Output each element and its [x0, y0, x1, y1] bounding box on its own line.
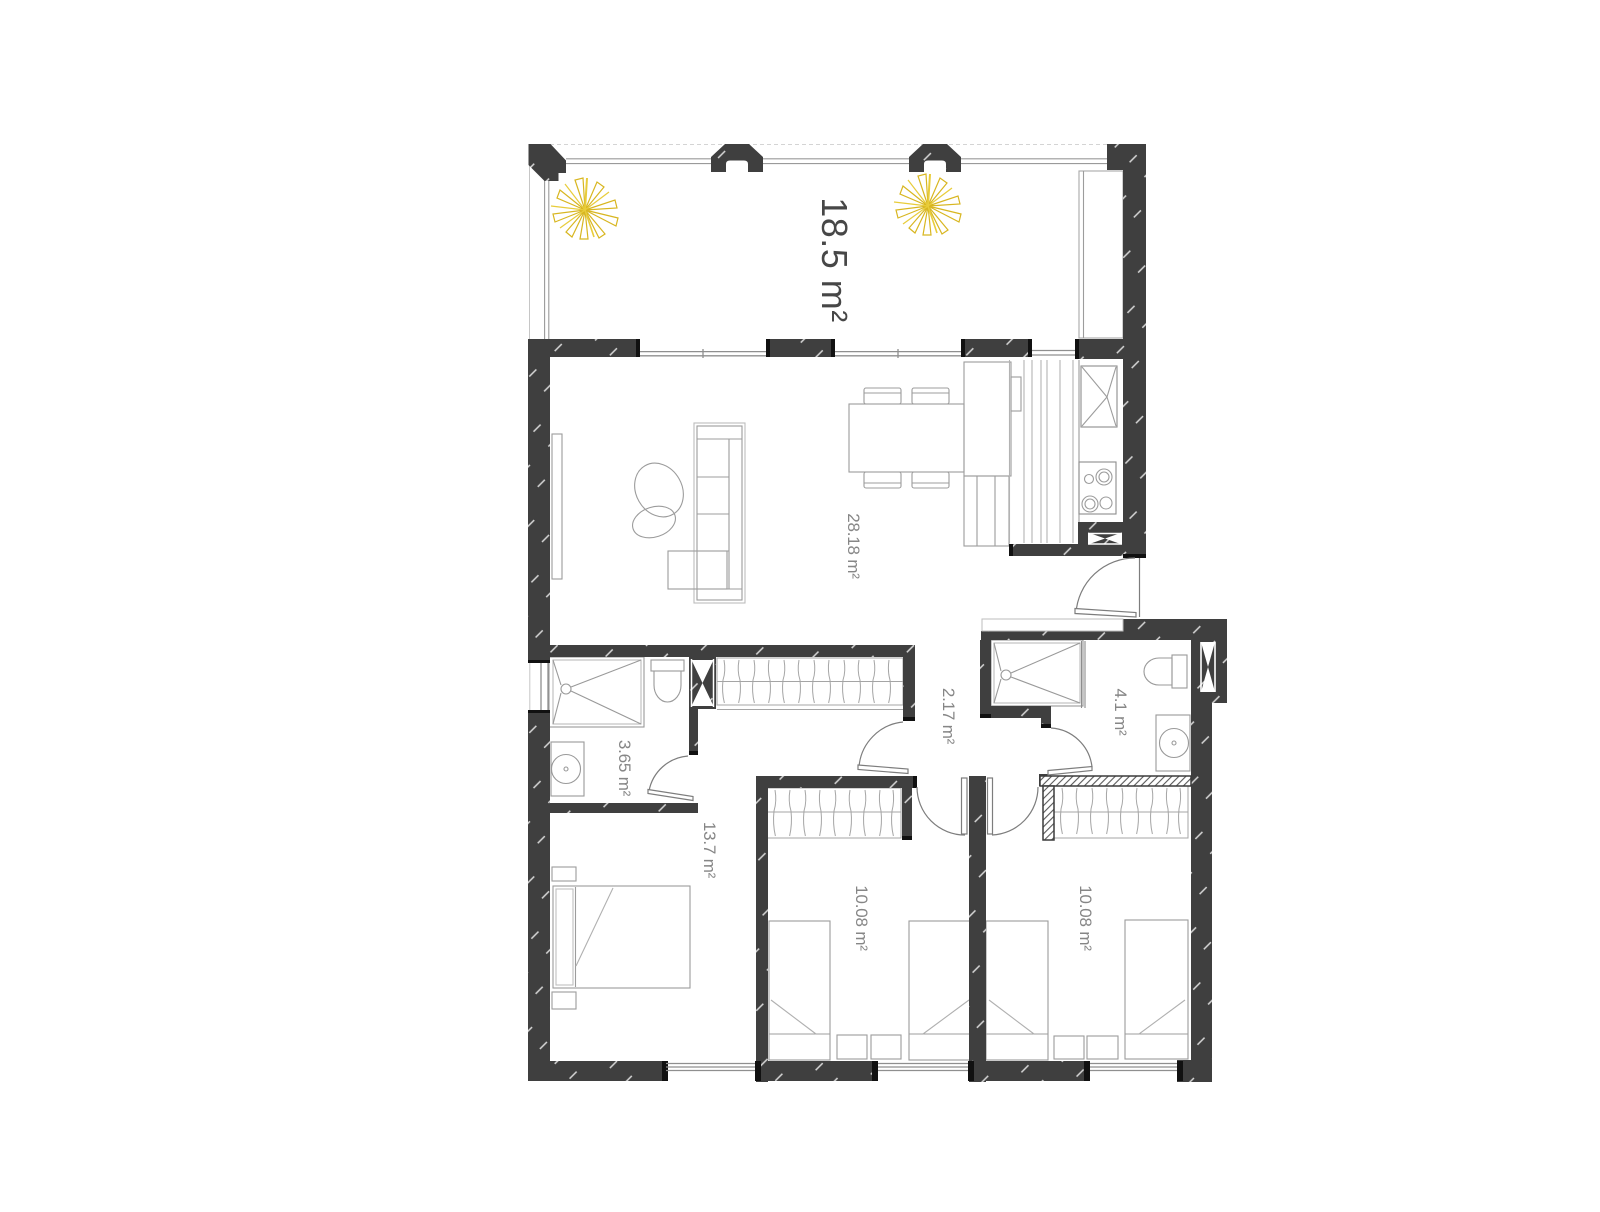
svg-text:18.5 m²: 18.5 m²: [814, 197, 855, 323]
svg-text:10.08 m²: 10.08 m²: [1076, 885, 1095, 951]
svg-text:10.08 m²: 10.08 m²: [852, 885, 871, 951]
svg-text:3.65 m²: 3.65 m²: [615, 740, 634, 797]
svg-text:28.18 m²: 28.18 m²: [844, 513, 863, 579]
svg-text:13.7 m²: 13.7 m²: [700, 822, 719, 879]
svg-text:2.17 m²: 2.17 m²: [939, 688, 958, 745]
svg-text:4.1 m²: 4.1 m²: [1111, 689, 1130, 737]
